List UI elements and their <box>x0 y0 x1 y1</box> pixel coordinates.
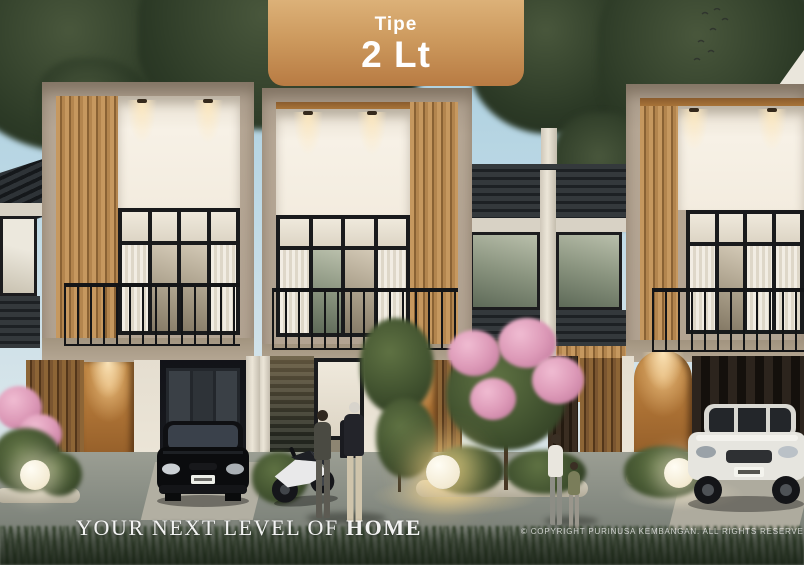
downlight-icon <box>303 111 313 115</box>
house3-downlight-beam <box>672 109 716 179</box>
house2-downlight-beam <box>286 112 330 184</box>
neighbor-beam <box>0 203 42 216</box>
house1-balcony-railing <box>64 283 240 346</box>
tagline: YOUR NEXT LEVEL OF HOME <box>76 515 422 541</box>
pink-blossoms <box>470 378 516 420</box>
house1-downlight-beam <box>186 100 230 172</box>
downlight-icon <box>689 108 699 112</box>
house3-downlight-beam <box>750 109 794 179</box>
person-woman <box>314 410 331 518</box>
connector-window-right <box>556 232 622 310</box>
connector-window-left <box>470 232 540 310</box>
house1-door-light <box>80 362 136 422</box>
downlight-icon <box>137 99 147 103</box>
type-value: 2 Lt <box>361 36 431 74</box>
type-banner: Tipe 2 Lt <box>268 0 524 86</box>
pink-blossoms <box>532 356 584 404</box>
house1-downlight-beam <box>120 100 164 172</box>
house3-soffit <box>640 98 804 106</box>
person-man <box>344 402 364 522</box>
house2-downlight-beam <box>350 112 394 184</box>
person-woman <box>548 434 563 525</box>
black-car <box>153 413 253 508</box>
globe-lamp <box>20 460 50 490</box>
downlight-icon <box>367 111 377 115</box>
pink-blossoms <box>448 330 500 376</box>
tagline-prefix: YOUR NEXT LEVEL OF <box>76 515 346 540</box>
type-label: Tipe <box>375 14 418 36</box>
copyright-notice: © COPYRIGHT PURINUSA KEMBANGAN. ALL RIGH… <box>521 527 804 536</box>
townhouse-render-poster: Tipe 2 Lt YOUR NEXT LEVEL OF HOME © COPY… <box>0 0 804 565</box>
person-child <box>568 462 580 529</box>
downlight-icon <box>203 99 213 103</box>
globe-lamp-lit <box>426 455 460 489</box>
house3-balcony-railing <box>652 288 804 352</box>
white-car <box>682 398 804 516</box>
bird-flock <box>688 8 752 66</box>
neighbor-window <box>0 216 37 296</box>
neighbor-stone-wall <box>0 296 40 348</box>
motorcycle <box>263 423 344 511</box>
tagline-emphasis: HOME <box>346 515 422 540</box>
downlight-icon <box>767 108 777 112</box>
